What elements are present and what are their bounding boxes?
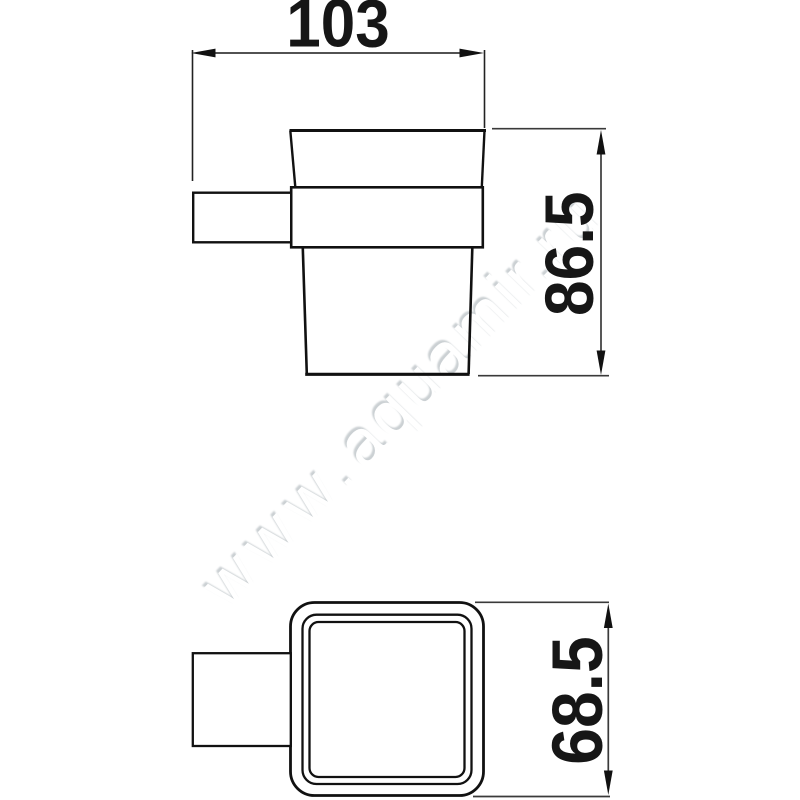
- svg-text:103: 103: [286, 0, 389, 61]
- svg-text:86.5: 86.5: [532, 191, 609, 316]
- svg-text:68.5: 68.5: [537, 636, 617, 764]
